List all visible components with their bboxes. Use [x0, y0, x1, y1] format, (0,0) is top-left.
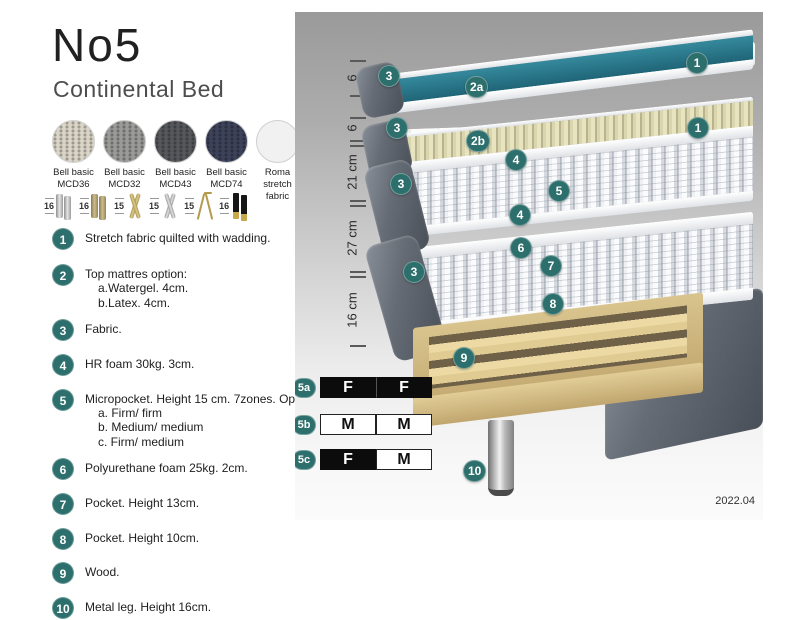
feature-number-badge: 3 — [52, 319, 74, 341]
feature-subitem: a.Watergel. 4cm. — [98, 281, 188, 296]
callout-badge-6: 6 — [510, 237, 532, 259]
callout-badge-7: 7 — [540, 255, 562, 277]
callout-badge-1: 1 — [687, 117, 709, 139]
scale-tick — [350, 345, 366, 347]
feature-text: Wood. — [85, 562, 119, 579]
feature-number-badge: 8 — [52, 528, 74, 550]
leg-height: 15 — [114, 201, 124, 211]
scale-label: 6 — [345, 124, 360, 131]
feature-text: Top mattres option: — [85, 267, 187, 281]
feature-number-badge: 9 — [52, 562, 74, 584]
fabric-swatch-circle — [256, 120, 299, 163]
leg-height: 16 — [79, 201, 89, 211]
firmness-row-5a: 5a F F — [295, 377, 432, 398]
callout-badge-3: 3 — [390, 173, 412, 195]
fabric-name: Roma — [265, 167, 290, 178]
feature-text: Stretch fabric quilted with wadding. — [85, 228, 270, 245]
firmness-row-5b: 5b M M — [295, 414, 432, 435]
block-black-gold-leg-icon — [231, 192, 249, 220]
leg-option: 15 — [114, 188, 144, 224]
feature-number-badge: 4 — [52, 354, 74, 376]
feature-text: Polyurethane foam 25kg. 2cm. — [85, 458, 248, 475]
fabric-code: stretch fabric — [263, 179, 292, 202]
callout-badge-2b: 2b — [466, 130, 490, 152]
page-title: No5 — [52, 18, 142, 72]
callout-badge-2a: 2a — [465, 76, 488, 98]
firmness-cell: M — [376, 449, 432, 470]
feature-number-badge: 10 — [52, 597, 74, 619]
callout-badge-4: 4 — [505, 149, 527, 171]
firmness-cell: M — [320, 414, 376, 435]
fabric-swatch-circle — [205, 120, 248, 163]
leg-height: 16 — [219, 201, 229, 211]
feature-item: 7 Pocket. Height 13cm. — [52, 493, 294, 515]
feature-number-badge: 2 — [52, 264, 74, 286]
feature-item: 10 Metal leg. Height 16cm. — [52, 597, 294, 619]
scale-label: 21 cm — [345, 154, 360, 189]
feature-text: Micropocket. Height 15 cm. 7zones. Optio… — [85, 392, 318, 406]
callout-badge-5a: 5a — [295, 378, 316, 398]
feature-number-badge: 1 — [52, 228, 74, 250]
leg-options-row: 16 16 15 15 15 16 — [44, 188, 249, 224]
page-subtitle: Continental Bed — [53, 76, 224, 103]
scale-tick — [350, 271, 366, 273]
scale-tick — [350, 276, 366, 278]
feature-item: 9 Wood. — [52, 562, 294, 584]
callout-badge-4: 4 — [509, 204, 531, 226]
leg-option: 16 — [219, 188, 249, 224]
firmness-cell: F — [320, 449, 376, 470]
fabric-swatch-circle — [154, 120, 197, 163]
twisted-gold-leg-icon — [126, 192, 144, 220]
cylinder-brass-leg-icon — [91, 192, 109, 220]
callout-badge-9: 9 — [453, 347, 475, 369]
fabric-name: Bell basic — [104, 167, 145, 178]
callout-badge-3: 3 — [386, 117, 408, 139]
feature-subitem: b.Latex. 4cm. — [98, 296, 188, 311]
leg-height: 15 — [149, 201, 159, 211]
fabric-swatch: Romastretch fabric — [254, 120, 301, 203]
firmness-cell: F — [376, 377, 432, 398]
bed-cutaway-diagram: 6 6 21 cm 27 cm 16 cm — [295, 12, 763, 520]
feature-item: 5 Micropocket. Height 15 cm. 7zones. Opt… — [52, 389, 294, 450]
leg-option: 16 — [44, 188, 74, 224]
leg-height: 16 — [44, 201, 54, 211]
feature-item: 6 Polyurethane foam 25kg. 2cm. — [52, 458, 294, 480]
scale-tick — [350, 117, 366, 119]
feature-item: 8 Pocket. Height 10cm. — [52, 528, 294, 550]
fabric-name: Bell basic — [53, 167, 94, 178]
firmness-row-5c: 5c F M — [295, 449, 432, 470]
callout-badge-8: 8 — [542, 293, 564, 315]
feature-item: 2 Top mattres option: a.Watergel. 4cm. b… — [52, 264, 294, 311]
fabric-swatch-circle — [52, 120, 95, 163]
metal-leg-front — [488, 420, 514, 496]
hairpin-leg-icon — [196, 192, 214, 220]
scale-tick — [350, 60, 366, 62]
callout-badge-10: 10 — [463, 460, 486, 482]
feature-subitem: a. Firm/ firm — [98, 406, 318, 421]
info-panel: No5 Continental Bed Bell basicMCD36 Bell… — [0, 0, 295, 533]
leg-option: 15 — [184, 188, 214, 224]
callout-badge-5: 5 — [548, 180, 570, 202]
callout-badge-3: 3 — [403, 261, 425, 283]
leg-option: 16 — [79, 188, 109, 224]
twisted-silver-leg-icon — [161, 192, 179, 220]
feature-text: Metal leg. Height 16cm. — [85, 597, 211, 614]
callout-badge-5c: 5c — [295, 450, 316, 470]
fabric-swatch-circle — [103, 120, 146, 163]
feature-text: Fabric. — [85, 319, 122, 336]
callout-badge-1: 1 — [686, 52, 708, 74]
scale-tick — [350, 200, 366, 202]
leg-option: 15 — [149, 188, 179, 224]
feature-number-badge: 7 — [52, 493, 74, 515]
callout-badge-3: 3 — [378, 65, 400, 87]
feature-item: 3 Fabric. — [52, 319, 294, 341]
firmness-cell: F — [320, 377, 376, 398]
callout-badge-5b: 5b — [295, 415, 316, 435]
scale-tick — [350, 205, 366, 207]
fabric-name: Bell basic — [155, 167, 196, 178]
feature-number-badge: 5 — [52, 389, 74, 411]
feature-item: 4 HR foam 30kg. 3cm. — [52, 354, 294, 376]
fabric-name: Bell basic — [206, 167, 247, 178]
feature-text: HR foam 30kg. 3cm. — [85, 354, 194, 371]
cylinder-silver-leg-icon — [56, 192, 74, 220]
feature-list: 1 Stretch fabric quilted with wadding. 2… — [52, 228, 294, 619]
feature-subitem: b. Medium/ medium — [98, 420, 318, 435]
scale-label: 27 cm — [345, 220, 360, 255]
scale-label: 16 cm — [345, 292, 360, 327]
version-label: 2022.04 — [715, 495, 755, 507]
firmness-cell: M — [376, 414, 432, 435]
feature-text: Pocket. Height 13cm. — [85, 493, 199, 510]
feature-text: Pocket. Height 10cm. — [85, 528, 199, 545]
feature-subitem: c. Firm/ medium — [98, 435, 318, 450]
leg-height: 15 — [184, 201, 194, 211]
feature-item: 1 Stretch fabric quilted with wadding. — [52, 228, 294, 250]
feature-number-badge: 6 — [52, 458, 74, 480]
